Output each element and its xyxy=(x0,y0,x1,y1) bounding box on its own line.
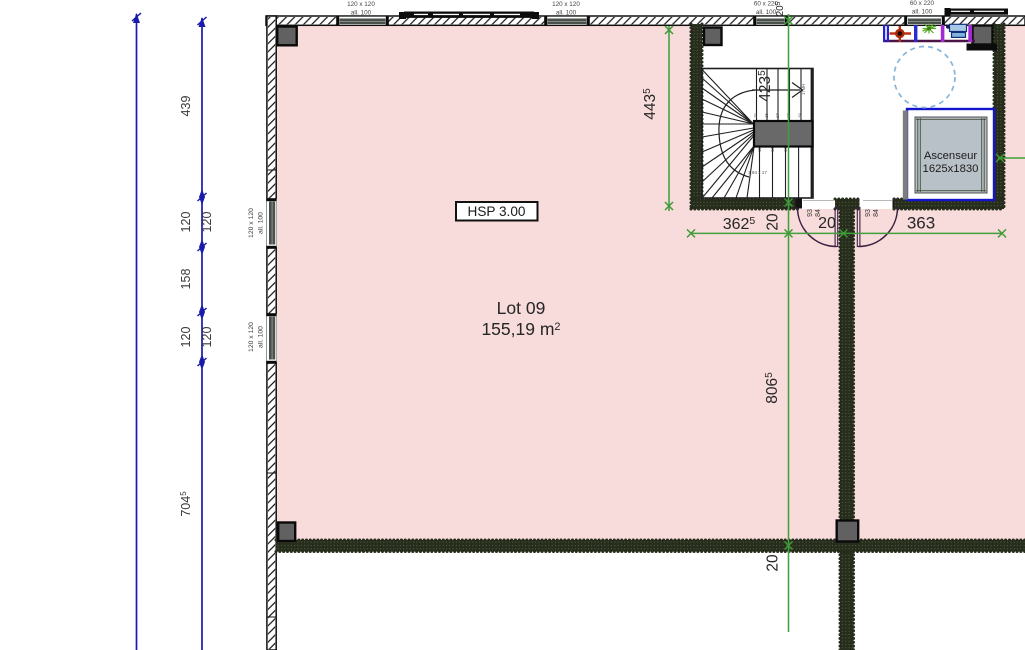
svg-text:120 x 120: 120 x 120 xyxy=(347,1,375,8)
svg-text:84: 84 xyxy=(873,209,880,217)
svg-text:120: 120 xyxy=(179,327,193,348)
svg-text:60 x 220: 60 x 220 xyxy=(754,1,779,8)
svg-text:all. 100: all. 100 xyxy=(258,326,265,348)
svg-text:11: 11 xyxy=(757,147,762,152)
svg-text:363: 363 xyxy=(907,214,935,233)
svg-text:17MH: 17MH xyxy=(801,84,806,95)
svg-text:all. 100: all. 100 xyxy=(756,9,777,16)
svg-text:all. 100: all. 100 xyxy=(912,9,933,16)
svg-text:17: 17 xyxy=(775,113,780,118)
svg-text:15: 15 xyxy=(753,113,758,118)
svg-text:20: 20 xyxy=(765,213,782,231)
svg-text:439: 439 xyxy=(179,96,193,117)
svg-text:13: 13 xyxy=(783,147,788,152)
svg-text:20: 20 xyxy=(765,554,782,572)
svg-text:84: 84 xyxy=(815,209,822,217)
svg-text:93: 93 xyxy=(807,209,814,217)
svg-text:60 x 220: 60 x 220 xyxy=(910,0,935,7)
svg-text:120: 120 xyxy=(179,212,193,233)
svg-text:19: 19 xyxy=(798,113,803,118)
svg-text:158: 158 xyxy=(179,269,193,290)
svg-text:120 x 120: 120 x 120 xyxy=(552,1,580,8)
svg-text:1625x1830: 1625x1830 xyxy=(923,163,979,175)
svg-text:Lot 09: Lot 09 xyxy=(497,298,546,318)
svg-text:120: 120 xyxy=(200,327,214,348)
svg-text:all. 100: all. 100 xyxy=(351,10,372,17)
svg-text:93: 93 xyxy=(865,209,872,217)
svg-text:HSP 3.00: HSP 3.00 xyxy=(468,204,526,219)
svg-text:12: 12 xyxy=(770,147,775,152)
svg-text:120 x 120: 120 x 120 xyxy=(248,208,255,238)
svg-text:120: 120 xyxy=(200,212,214,233)
svg-text:120 x 120: 120 x 120 xyxy=(248,322,255,352)
svg-text:16: 16 xyxy=(764,113,769,118)
svg-text:3,94 x 17: 3,94 x 17 xyxy=(748,170,767,175)
svg-text:all. 100: all. 100 xyxy=(258,212,265,234)
svg-text:155,19 m2: 155,19 m2 xyxy=(481,319,560,339)
svg-text:all. 100: all. 100 xyxy=(556,10,577,17)
svg-text:Ascenseur: Ascenseur xyxy=(924,150,978,162)
